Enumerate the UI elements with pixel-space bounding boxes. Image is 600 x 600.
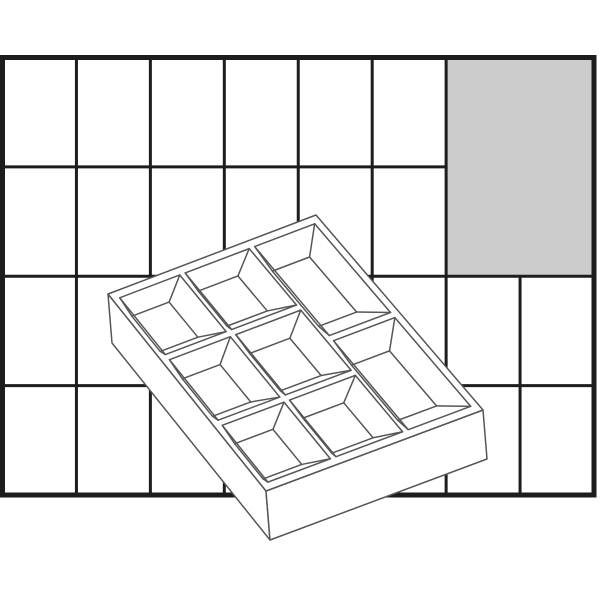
grid-paper-and-insert-tray-illustration: [0, 0, 600, 600]
highlighted-cell-block: [446, 58, 594, 277]
product-image-canvas: [0, 0, 600, 600]
